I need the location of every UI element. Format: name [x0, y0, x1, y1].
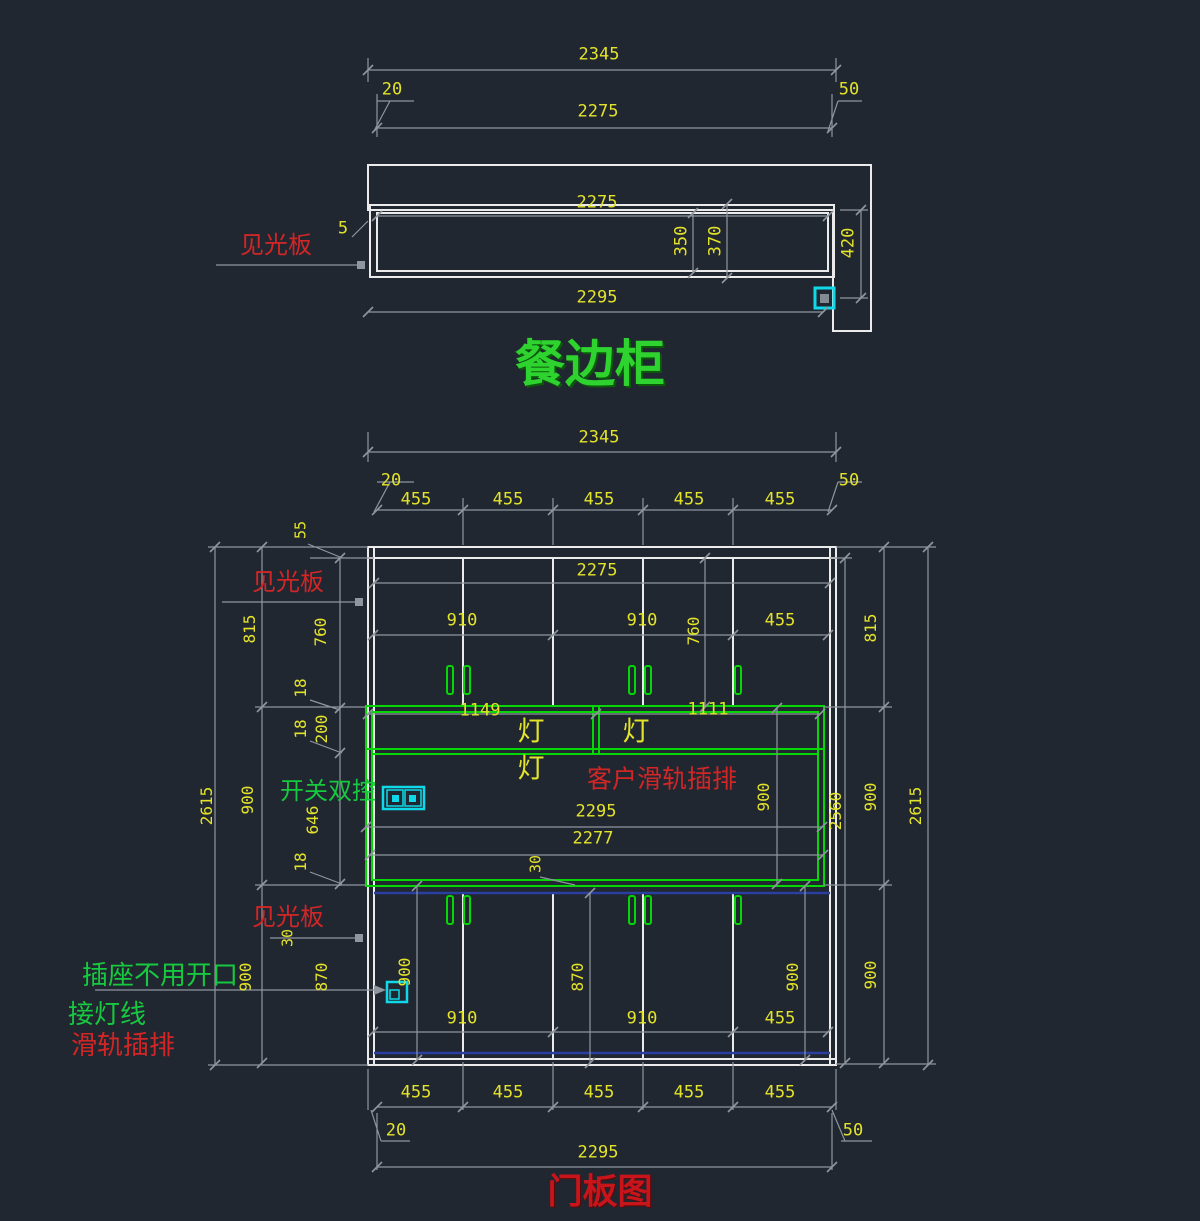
- dim-elev-bottom-door-2: 455: [493, 1085, 524, 1102]
- dim-elev-gap-30-mid: 30: [529, 855, 544, 873]
- dim-elev-shelf-18-c: 18: [293, 852, 309, 871]
- dim-elev-open-646: 646: [305, 806, 321, 835]
- dim-elev-section-815-right: 815: [863, 614, 879, 643]
- dim-elev-door-width-1: 455: [401, 492, 432, 509]
- label-rail-socket: 滑轨插排: [71, 1033, 175, 1059]
- label-elev-visible-panel-bottom: 见光板: [252, 905, 324, 929]
- dim-plan-total-width: 2345: [579, 47, 620, 64]
- dim-elev-lower-910-a: 910: [447, 1011, 478, 1028]
- dim-plan-depth-350: 350: [674, 226, 691, 257]
- dim-elev-left-offset: 20: [381, 473, 401, 490]
- label-double-switch: 开关双控: [280, 779, 376, 803]
- label-lamp-1: 灯: [518, 719, 545, 746]
- dim-elev-inner-width: 2275: [577, 563, 618, 580]
- dim-elev-open-width-2295: 2295: [576, 804, 617, 821]
- dim-elev-lower-900-inner-right: 900: [785, 963, 801, 992]
- dim-elev-section-815-left: 815: [242, 615, 258, 644]
- dim-elev-door-width-4: 455: [674, 492, 705, 509]
- dim-elev-lower-910-b: 910: [627, 1011, 658, 1028]
- annotations-layer: 23452022755022755见光板3503704202295餐边柜2345…: [0, 0, 1200, 1221]
- dim-elev-bottom-door-4: 455: [674, 1085, 705, 1102]
- dim-elev-lower-900-outer-right: 900: [863, 961, 879, 990]
- dim-elev-door-width-5: 455: [765, 492, 796, 509]
- dim-plan-gap-5: 5: [338, 221, 348, 238]
- label-elev-visible-panel-top: 见光板: [252, 570, 324, 594]
- dim-elev-bottom-door-1: 455: [401, 1085, 432, 1102]
- dim-elev-door-width-2: 455: [493, 492, 524, 509]
- dim-elev-total-height-2615-left: 2615: [199, 787, 215, 826]
- dim-elev-gap-30-bottom: 30: [281, 929, 296, 947]
- dim-elev-top-panel-55: 55: [294, 521, 309, 539]
- dim-elev-lower-455: 455: [765, 1011, 796, 1028]
- elevation-title: 门板图: [547, 1175, 652, 1210]
- dim-elev-door-width-3: 455: [584, 492, 615, 509]
- dim-elev-upper-910-a: 910: [447, 613, 478, 630]
- dim-elev-upper-910-b: 910: [627, 613, 658, 630]
- dim-elev-right-offset: 50: [839, 473, 859, 490]
- label-lamp-3: 灯: [518, 756, 545, 783]
- dim-elev-lightstrip-200: 200: [314, 715, 330, 744]
- dim-elev-lower-870-mid: 870: [570, 963, 586, 992]
- dim-elev-bottom-door-5: 455: [765, 1085, 796, 1102]
- dim-elev-mid-900-right: 900: [863, 783, 879, 812]
- dim-elev-bottom-left-offset: 20: [386, 1123, 406, 1140]
- dim-elev-upper-455: 455: [765, 613, 796, 630]
- dim-elev-shelf-18-a: 18: [293, 678, 309, 697]
- dim-elev-inner-height-2560: 2560: [828, 792, 844, 831]
- label-lamp-2: 灯: [623, 719, 650, 746]
- dim-elev-upper-height-760-left: 760: [313, 618, 329, 647]
- dim-elev-lower-870-left: 870: [314, 963, 330, 992]
- dim-elev-mid-900-inner: 900: [756, 783, 772, 812]
- dim-elev-bottom-right-offset: 50: [843, 1123, 863, 1140]
- dim-elev-total-height-2615-right: 2615: [908, 787, 924, 826]
- dim-elev-lower-900-inner-left: 900: [397, 958, 413, 987]
- dim-plan-bottom-width: 2295: [577, 290, 618, 307]
- dim-elev-lamp-span-1111: 1111: [688, 702, 729, 719]
- label-client-rail-socket: 客户滑轨插排: [587, 767, 737, 792]
- dim-plan-depth-370: 370: [708, 226, 725, 257]
- dim-elev-upper-height-760-inner: 760: [686, 617, 702, 646]
- label-socket-no-opening: 插座不用开口: [82, 963, 238, 989]
- dim-plan-inner-width: 2275: [578, 104, 619, 121]
- dim-elev-lamp-span-1149: 1149: [460, 703, 501, 720]
- dim-elev-bottom-width-2295: 2295: [578, 1145, 619, 1162]
- dim-plan-cabinet-width: 2275: [577, 195, 618, 212]
- dim-elev-mid-900-left: 900: [240, 786, 256, 815]
- dim-elev-shelf-18-b: 18: [293, 719, 309, 738]
- label-plan-visible-panel: 见光板: [240, 233, 312, 257]
- dim-elev-lower-900-outer-left: 900: [238, 963, 254, 992]
- dim-plan-depth-420: 420: [841, 228, 858, 259]
- cad-canvas: 23452022755022755见光板3503704202295餐边柜2345…: [0, 0, 1200, 1221]
- label-lamp-wire: 接灯线: [68, 1002, 146, 1028]
- dim-elev-bottom-door-3: 455: [584, 1085, 615, 1102]
- dim-elev-total-width: 2345: [579, 430, 620, 447]
- dim-plan-right-offset: 50: [839, 82, 859, 99]
- dim-plan-left-offset: 20: [382, 82, 402, 99]
- dim-elev-open-width-2277: 2277: [573, 831, 614, 848]
- plan-title: 餐边柜: [515, 339, 665, 389]
